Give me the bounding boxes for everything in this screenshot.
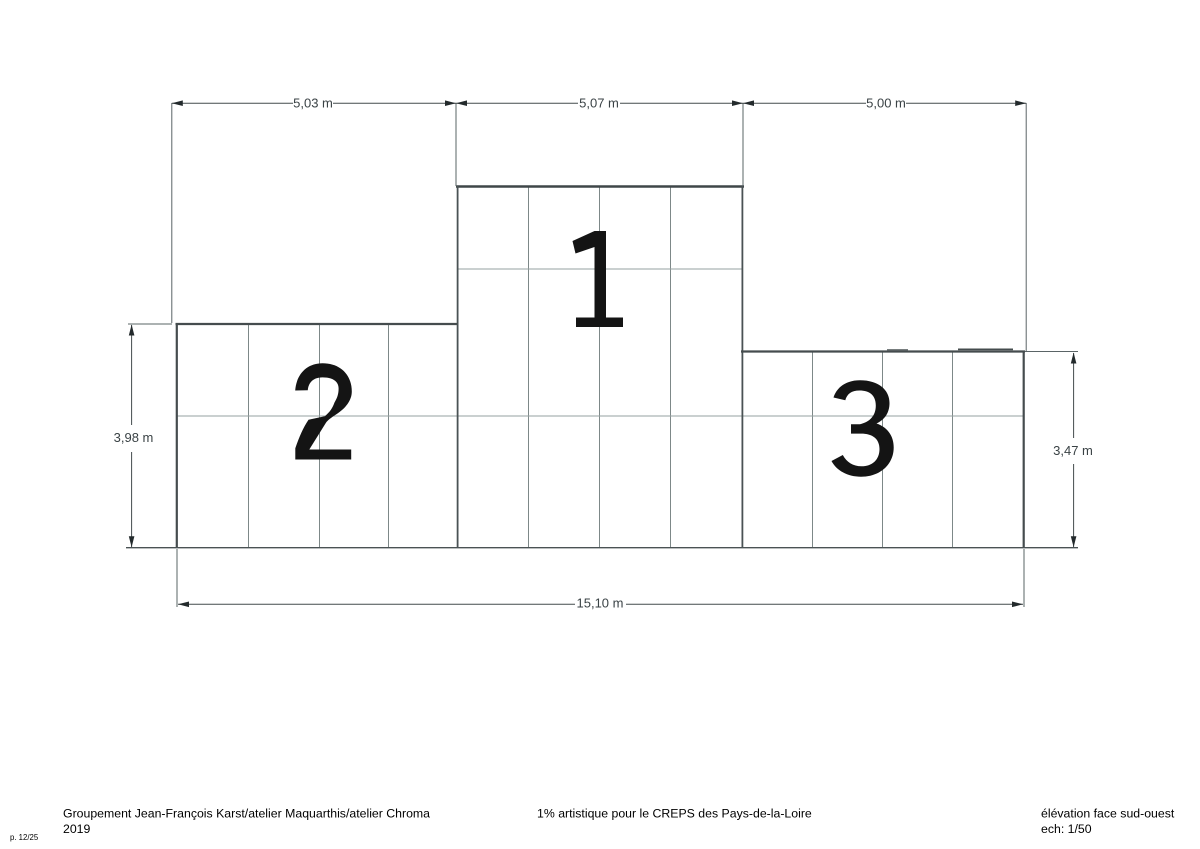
svg-text:ech: 1/50: ech: 1/50	[1041, 822, 1092, 836]
svg-text:2019: 2019	[63, 822, 91, 836]
svg-text:p. 12/25: p. 12/25	[10, 833, 39, 842]
svg-text:Groupement Jean-François Karst: Groupement Jean-François Karst/atelier M…	[63, 807, 430, 821]
svg-text:élévation face sud-ouest: élévation face sud-ouest	[1041, 807, 1175, 821]
svg-text:15,10 m: 15,10 m	[577, 596, 624, 611]
svg-text:3,98 m: 3,98 m	[114, 430, 154, 445]
svg-text:5,07 m: 5,07 m	[579, 96, 619, 111]
svg-text:1% artistique pour le CREPS de: 1% artistique pour le CREPS des Pays-de-…	[537, 807, 812, 821]
svg-text:3,47 m: 3,47 m	[1053, 443, 1093, 458]
svg-text:5,00 m: 5,00 m	[866, 96, 906, 111]
svg-text:5,03 m: 5,03 m	[293, 96, 333, 111]
